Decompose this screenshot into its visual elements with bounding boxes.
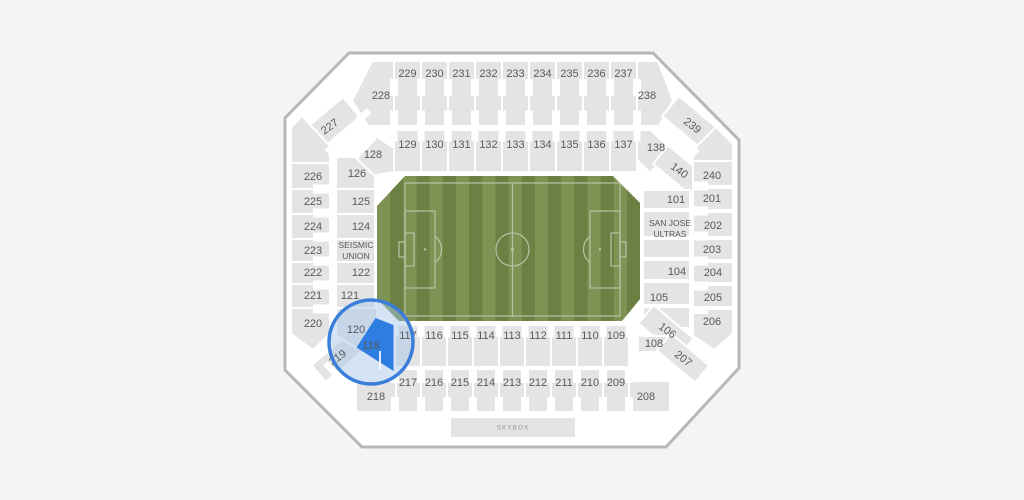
- section-103[interactable]: [643, 239, 690, 258]
- section-137-label: 137: [614, 139, 632, 151]
- san-jose-ultras-label-2: ULTRAS: [654, 229, 687, 239]
- section-124-label: 124: [352, 221, 370, 233]
- section-134-label: 134: [533, 139, 551, 151]
- section-121-label: 121: [341, 290, 359, 302]
- section-137[interactable]: [610, 130, 637, 172]
- section-135[interactable]: [556, 130, 583, 172]
- section-213-label: 213: [503, 377, 521, 389]
- section-204-label: 204: [704, 267, 722, 279]
- section-229-label: 229: [398, 68, 416, 80]
- section-226-label: 226: [304, 171, 322, 183]
- section-132[interactable]: [475, 130, 502, 172]
- section-218-label: 218: [367, 391, 385, 403]
- section-237-label: 237: [614, 68, 632, 80]
- section-222-label: 222: [304, 267, 322, 279]
- skybox-label: SKYBOX: [497, 425, 530, 432]
- section-221-label: 221: [304, 290, 322, 302]
- section-101-label: 101: [667, 194, 685, 206]
- section-232-label: 232: [479, 68, 497, 80]
- section-132-label: 132: [479, 139, 497, 151]
- section-216-label: 216: [425, 377, 443, 389]
- section-210-label: 210: [581, 377, 599, 389]
- section-220-label: 220: [304, 318, 322, 330]
- section-110-label: 110: [581, 330, 599, 342]
- section-130-label: 130: [425, 139, 443, 151]
- section-131-label: 131: [452, 139, 470, 151]
- section-136[interactable]: [583, 130, 610, 172]
- section-128-label: 128: [364, 149, 382, 161]
- section-129[interactable]: [394, 130, 421, 172]
- section-201-label: 201: [703, 193, 721, 205]
- section-206-label: 206: [703, 316, 721, 328]
- section-235-label: 235: [560, 68, 578, 80]
- section-228-label: 228: [372, 90, 390, 102]
- section-224-label: 224: [304, 221, 322, 233]
- section-230-label: 230: [425, 68, 443, 80]
- section-130[interactable]: [421, 130, 448, 172]
- section-202-label: 202: [704, 220, 722, 232]
- section-109-label: 109: [607, 330, 625, 342]
- section-215-label: 215: [451, 377, 469, 389]
- seismic-union-label-2: UNION: [342, 251, 369, 261]
- section-138-label: 138: [647, 142, 665, 154]
- seismic-union-label-1: SEISMIC: [339, 240, 374, 250]
- section-133[interactable]: [502, 130, 529, 172]
- section-104-label: 104: [668, 266, 686, 278]
- section-211-label: 211: [555, 377, 573, 389]
- section-236-label: 236: [587, 68, 605, 80]
- section-225-label: 225: [304, 196, 322, 208]
- section-212-label: 212: [529, 377, 547, 389]
- section-126-label: 126: [348, 168, 366, 180]
- soccer-field: [377, 176, 640, 321]
- section-112-label: 112: [529, 330, 547, 342]
- section-115-label: 115: [451, 330, 469, 342]
- section-133-label: 133: [506, 139, 524, 151]
- section-205-label: 205: [704, 292, 722, 304]
- section-234-label: 234: [533, 68, 551, 80]
- section-233-label: 233: [506, 68, 524, 80]
- section-209-label: 209: [607, 377, 625, 389]
- section-111-label: 111: [556, 330, 573, 342]
- section-240-label: 240: [703, 170, 721, 182]
- section-136-label: 136: [587, 139, 605, 151]
- section-114-label: 114: [477, 330, 495, 342]
- section-129-label: 129: [398, 139, 416, 151]
- section-116-label: 116: [425, 330, 443, 342]
- section-122-label: 122: [352, 267, 370, 279]
- san-jose-ultras-label-1: SAN JOSE: [649, 218, 691, 228]
- section-214-label: 214: [477, 377, 495, 389]
- section-113-label: 113: [503, 330, 521, 342]
- section-135-label: 135: [560, 139, 578, 151]
- section-208-label: 208: [637, 391, 655, 403]
- section-125-label: 125: [352, 196, 370, 208]
- section-231-label: 231: [452, 68, 470, 80]
- section-105-label: 105: [650, 292, 668, 304]
- seating-map-stage: 228 229 230 231 232 233 234 235 236 237 …: [0, 0, 1024, 500]
- section-223-label: 223: [304, 245, 322, 257]
- stadium-map: 228 229 230 231 232 233 234 235 236 237 …: [0, 0, 1024, 500]
- section-238-label: 238: [638, 90, 656, 102]
- section-120-label: 120: [347, 324, 365, 336]
- section-217-label: 217: [399, 377, 417, 389]
- section-134[interactable]: [529, 130, 556, 172]
- section-118-label: 118: [362, 340, 380, 352]
- section-203-label: 203: [703, 244, 721, 256]
- section-108-label: 108: [645, 338, 663, 350]
- section-131[interactable]: [448, 130, 475, 172]
